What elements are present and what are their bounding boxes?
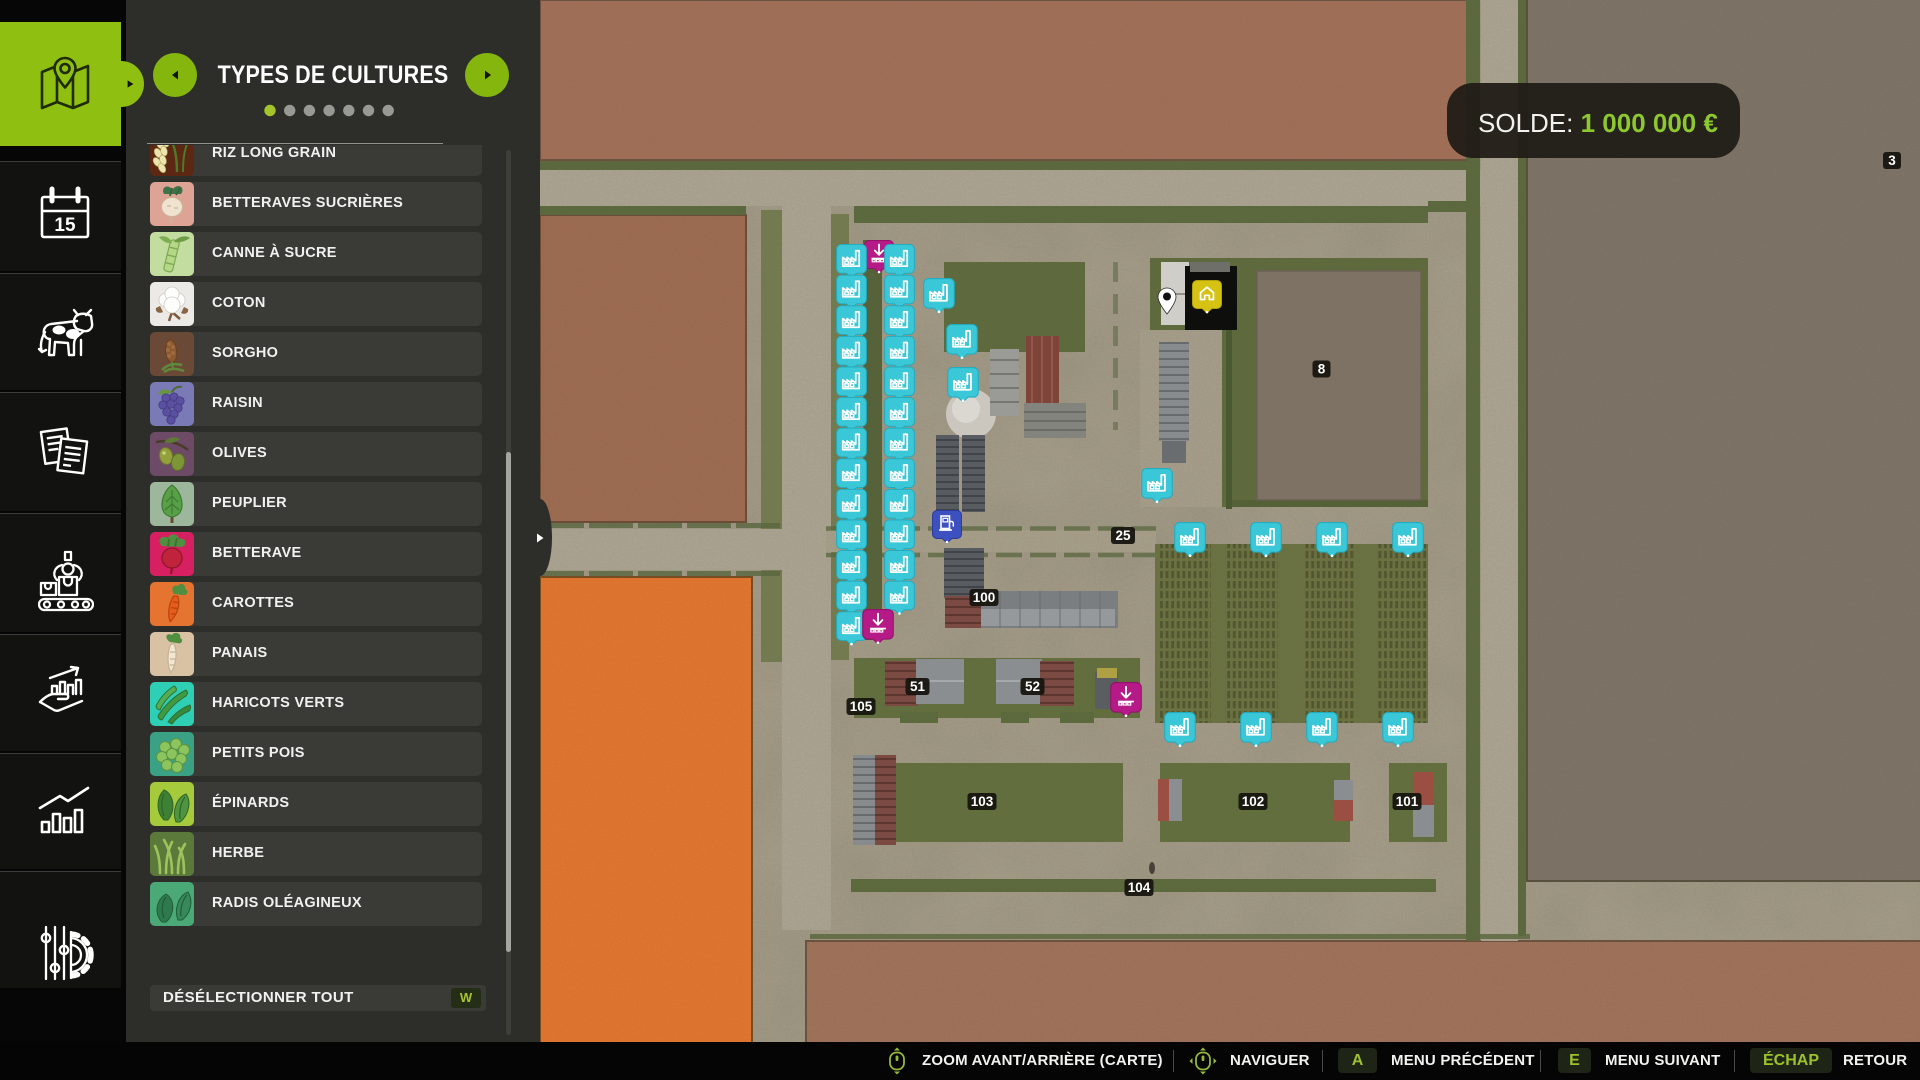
svg-text:25: 25 [1115,528,1131,543]
svg-text:52: 52 [1025,679,1040,694]
svg-text:104: 104 [1128,880,1151,895]
svg-text:102: 102 [1242,794,1265,809]
svg-text:101: 101 [1396,794,1419,809]
svg-text:105: 105 [850,699,873,714]
svg-text:8: 8 [1318,362,1326,377]
svg-text:15: 15 [54,215,76,236]
svg-text:3: 3 [1888,153,1896,168]
svg-text:51: 51 [910,679,926,694]
svg-text:100: 100 [973,590,996,605]
svg-text:103: 103 [971,794,994,809]
